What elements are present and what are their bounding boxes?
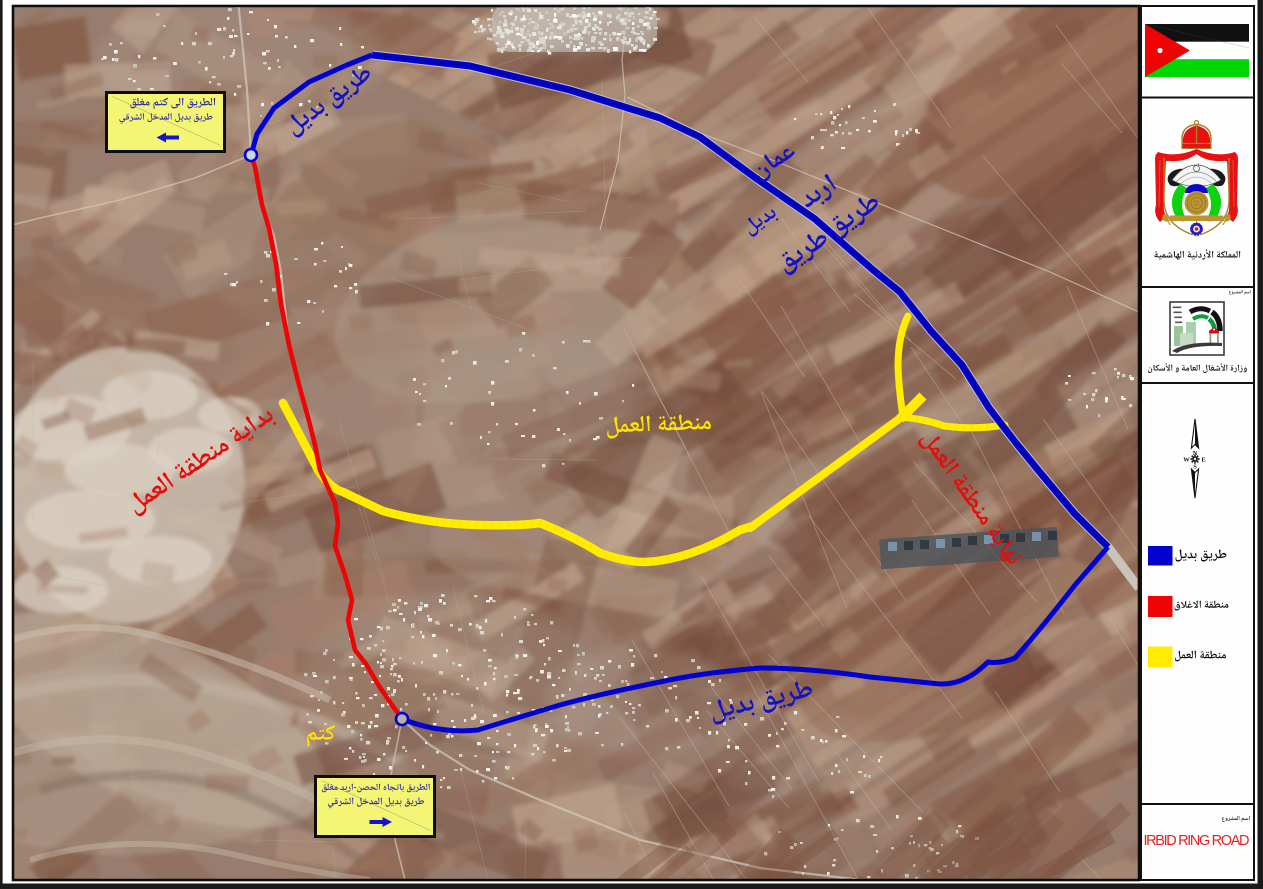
svg-text:S: S	[1193, 464, 1197, 471]
svg-text:IRBID RING ROAD: IRBID RING ROAD	[1144, 833, 1250, 849]
svg-text:E: E	[1201, 457, 1205, 464]
svg-text:W: W	[1183, 457, 1190, 464]
